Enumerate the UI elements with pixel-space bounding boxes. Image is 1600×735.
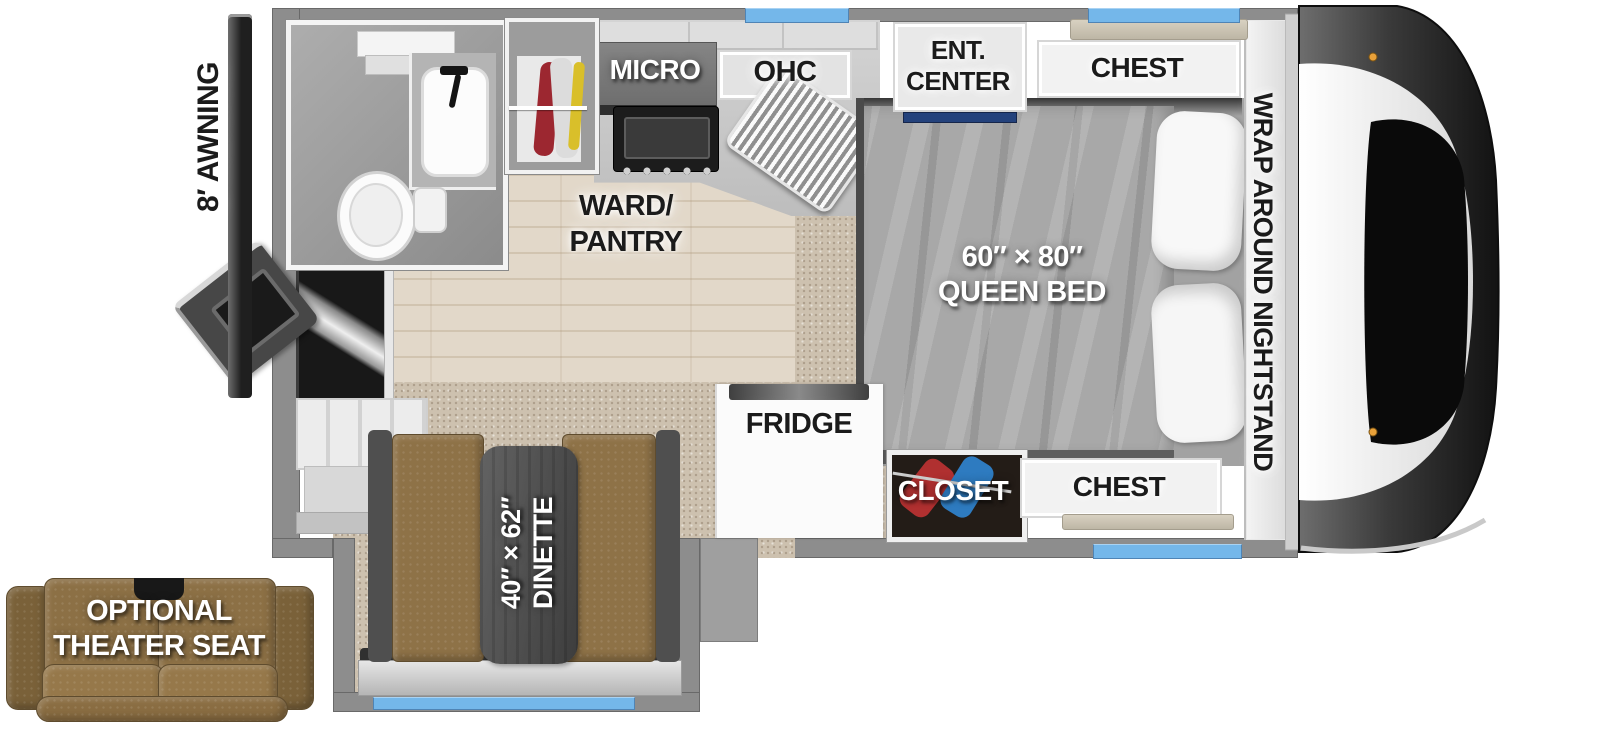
faucet-icon xyxy=(440,66,468,75)
microwave xyxy=(595,42,717,115)
slideout-wall-left xyxy=(333,538,355,712)
toilet xyxy=(337,171,417,261)
clearance-light-top xyxy=(1369,53,1377,61)
wardrobe xyxy=(505,18,599,174)
theater-seat: OPTIONAL THEATER SEAT xyxy=(6,578,312,722)
clearance-light-bottom xyxy=(1369,428,1377,436)
ent-center-cabinet xyxy=(893,22,1027,112)
front-cap xyxy=(1285,0,1510,562)
bedroom-window-top xyxy=(1088,8,1240,23)
theater-armrest-right xyxy=(272,586,314,710)
ent-center-tv-strip xyxy=(903,112,1017,123)
entry-doorway xyxy=(296,256,390,408)
chest-top-cabinet xyxy=(1037,40,1241,98)
bathroom xyxy=(286,20,508,270)
hanger-rod xyxy=(509,106,587,110)
bathroom-sink xyxy=(421,67,489,177)
awning-label-text: 8′ AWNING xyxy=(193,62,225,212)
cap-front-wall xyxy=(1285,14,1299,550)
bedroom-window-bottom xyxy=(1093,544,1242,559)
awning-rail xyxy=(228,14,252,398)
dinette-bench-left xyxy=(392,434,484,662)
fridge xyxy=(715,384,883,538)
wall-bottom-left xyxy=(272,538,333,558)
stove xyxy=(613,106,719,172)
kitchen-window xyxy=(745,8,849,23)
toilet-seat xyxy=(349,183,403,247)
entry-door-window xyxy=(210,267,301,356)
dinette-window xyxy=(373,697,635,710)
entry-door-jamb xyxy=(384,256,394,404)
dinette-backrest-right xyxy=(656,430,680,662)
faucet-hose xyxy=(449,74,462,109)
stove-knobs xyxy=(617,164,715,178)
theater-front-bolster xyxy=(36,696,288,722)
bed-blanket xyxy=(864,106,1174,456)
awning-label: 8′ AWNING xyxy=(189,7,229,267)
floor-plan: MICRO OHC WARD/ PANTRY xyxy=(0,0,1600,735)
dinette-step xyxy=(358,660,682,696)
closet xyxy=(887,450,1027,542)
cap-windshield xyxy=(1364,119,1468,444)
pillow-top xyxy=(1150,110,1248,272)
dinette-backrest-left xyxy=(368,430,392,662)
pillow-bottom xyxy=(1150,282,1248,444)
chest-bottom-base xyxy=(1062,514,1234,530)
theater-cupholder xyxy=(134,578,184,600)
fridge-top-vent xyxy=(729,384,869,400)
chest-bottom-cabinet xyxy=(1020,458,1222,518)
toilet-tank xyxy=(413,187,447,233)
oven-window xyxy=(624,117,710,159)
dinette-table xyxy=(480,446,578,664)
slideout-wing-right xyxy=(700,538,758,642)
